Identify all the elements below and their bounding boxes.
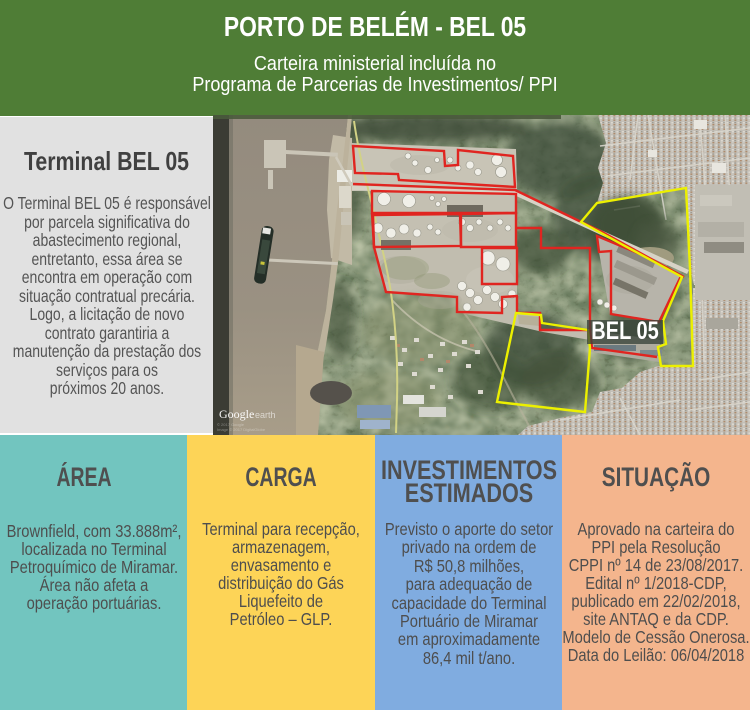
svg-text:Image © 2017 DigitalGlobe: Image © 2017 DigitalGlobe: [217, 427, 266, 432]
svg-text:earth: earth: [255, 410, 276, 420]
svg-text:BEL 05: BEL 05: [591, 317, 658, 345]
svg-text:Google: Google: [219, 407, 254, 421]
